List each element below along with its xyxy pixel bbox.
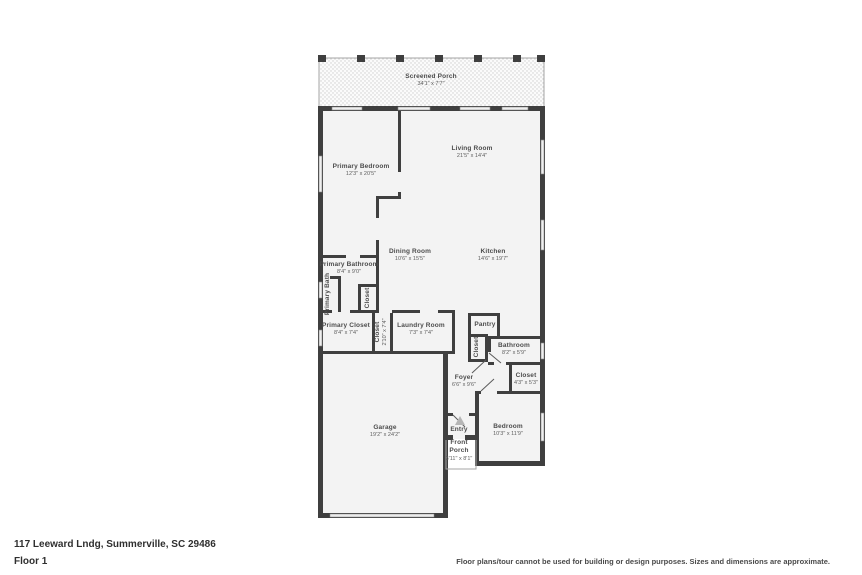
room-dims: 4'3" x 5'3" — [514, 381, 538, 388]
floor-label: Floor 1 — [14, 556, 47, 567]
room-label-garage: Garage 19'2" x 24'2" — [370, 424, 400, 440]
room-label-front-porch: Front Porch 3'11" x 8'1" — [444, 439, 474, 463]
room-name: Closet — [374, 318, 382, 345]
room-name: Closet — [473, 337, 481, 358]
room-name: Screened Porch — [405, 73, 457, 81]
room-name: Primary Bedroom — [333, 163, 390, 171]
room-dims: 2'10" x 7'4" — [383, 318, 390, 345]
room-dims: 8'2" x 5'9" — [498, 351, 530, 358]
room-dims: 10'3" x 11'9" — [493, 432, 523, 439]
property-address: 117 Leeward Lndg, Summerville, SC 29486 — [14, 539, 216, 550]
room-name: Living Room — [451, 145, 492, 153]
room-label-primary-closet: Primary Closet 8'4" x 7'4" — [322, 322, 370, 338]
room-dims: 12'3" x 20'5" — [333, 172, 390, 179]
room-dims: 3'11" x 8'1" — [444, 456, 474, 463]
room-label-primary-bath: Primary Bath — [324, 273, 332, 315]
room-label-kitchen: Kitchen 14'6" x 19'7" — [478, 248, 508, 264]
room-name: Laundry Room — [397, 322, 445, 330]
room-name: Pantry — [474, 321, 495, 329]
room-label-living-room: Living Room 21'5" x 14'4" — [451, 145, 492, 161]
room-label-pantry-closet: Closet — [473, 337, 481, 358]
disclaimer-text: Floor plans/tour cannot be used for buil… — [456, 557, 830, 566]
room-label-primary-bedroom: Primary Bedroom 12'3" x 20'5" — [333, 163, 390, 179]
room-name: Primary Bathroom — [319, 261, 378, 269]
room-dims: 10'6" x 15'5" — [389, 257, 431, 264]
room-name: Bedroom — [493, 423, 523, 431]
room-label-bath-closet: Closet — [364, 288, 372, 309]
room-label-pantry: Pantry — [474, 321, 495, 329]
room-name: Closet — [364, 288, 372, 309]
room-label-closet-strip: Closet 2'10" x 7'4" — [374, 318, 390, 345]
room-name: Garage — [370, 424, 400, 432]
room-name: Kitchen — [478, 248, 508, 256]
room-dims: 34'1" x 7'7" — [405, 82, 457, 89]
room-name: Foyer — [452, 374, 476, 382]
room-name: Primary Closet — [322, 322, 370, 330]
room-label-bedroom: Bedroom 10'3" x 11'9" — [493, 423, 523, 439]
room-label-dining-room: Dining Room 10'6" x 15'5" — [389, 248, 431, 264]
room-label-foyer: Foyer 6'6" x 9'6" — [452, 374, 476, 390]
room-dims: 8'4" x 7'4" — [322, 331, 370, 338]
room-dims: 21'5" x 14'4" — [451, 154, 492, 161]
room-name: Dining Room — [389, 248, 431, 256]
room-label-laundry-room: Laundry Room 7'3" x 7'4" — [397, 322, 445, 338]
room-label-bathroom: Bathroom 8'2" x 5'9" — [498, 342, 530, 358]
room-name: Closet — [514, 372, 538, 380]
room-dims: 7'3" x 7'4" — [397, 331, 445, 338]
floor-plan-canvas: Screened Porch 34'1" x 7'7" Living Room … — [0, 0, 862, 575]
room-label-entry: Entry — [450, 426, 467, 434]
room-name: Primary Bath — [324, 273, 332, 315]
room-dims: 19'2" x 24'2" — [370, 433, 400, 440]
room-name: Front Porch — [444, 439, 474, 456]
room-dims: 14'6" x 19'7" — [478, 257, 508, 264]
room-name: Bathroom — [498, 342, 530, 350]
room-label-screened-porch: Screened Porch 34'1" x 7'7" — [405, 73, 457, 89]
room-label-hall-closet: Closet 4'3" x 5'3" — [514, 372, 538, 388]
garage-door — [330, 514, 434, 517]
room-dims: 6'6" x 9'6" — [452, 383, 476, 390]
room-name: Entry — [450, 426, 467, 434]
